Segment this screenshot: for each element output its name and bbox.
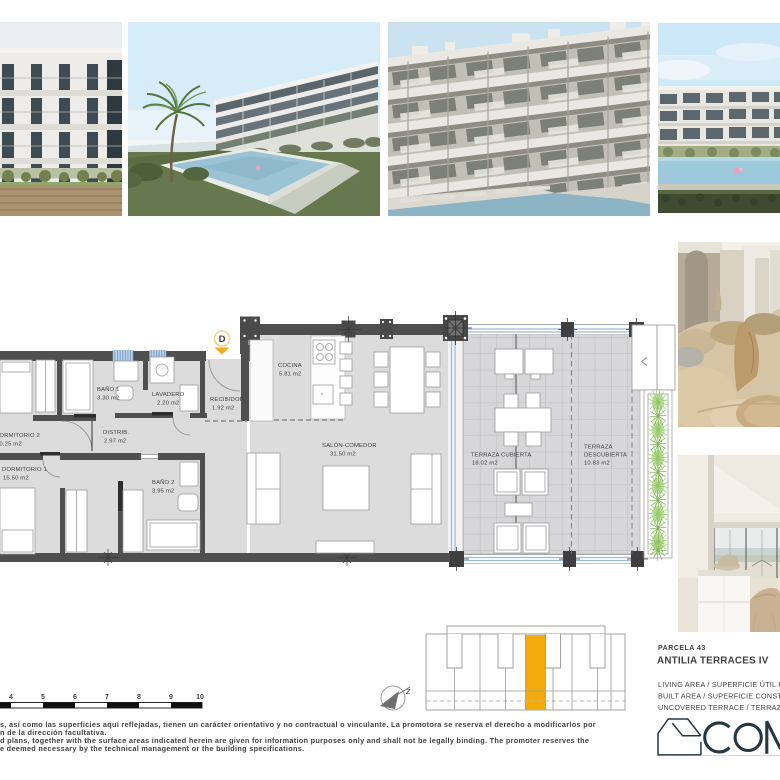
svg-text:15.50 m2: 15.50 m2 [3, 476, 29, 482]
svg-text:RECIBIDOR: RECIBIDOR [210, 397, 244, 403]
svg-text:10.25 m2: 10.25 m2 [0, 442, 22, 448]
svg-text:5.81 m2: 5.81 m2 [279, 372, 301, 378]
svg-text:10: 10 [196, 694, 204, 701]
svg-text:PARCELA 43: PARCELA 43 [658, 645, 706, 652]
svg-text:10.83 m2: 10.83 m2 [584, 461, 610, 467]
svg-text:3.30 m2: 3.30 m2 [97, 396, 119, 402]
svg-text:ANTILIA TERRACES IV: ANTILIA TERRACES IV [657, 656, 769, 667]
svg-text:DORMITORIO 1: DORMITORIO 1 [2, 467, 47, 473]
svg-text:9: 9 [169, 694, 173, 701]
svg-text:3.95 m2: 3.95 m2 [152, 489, 174, 495]
svg-text:31.50 m2: 31.50 m2 [330, 452, 356, 458]
svg-text:LIVING AREA / SUPERFICIE ÚTIL: LIVING AREA / SUPERFICIE ÚTIL RESIDENCIA… [658, 680, 780, 689]
svg-text:DISTRIB.: DISTRIB. [103, 430, 129, 436]
svg-text:LAVADERO: LAVADERO [152, 392, 185, 398]
svg-text:18.02 m2: 18.02 m2 [472, 461, 498, 467]
svg-text:z: z [405, 686, 411, 696]
svg-text:e deemed necessary by the tech: e deemed necessary by the technical mana… [0, 744, 304, 753]
svg-text:7: 7 [105, 694, 109, 701]
svg-text:UNCOVERED TERRACE / TERRAZA DE: UNCOVERED TERRACE / TERRAZA DESCUBIERTA [658, 703, 780, 712]
svg-text:8: 8 [137, 694, 141, 701]
svg-text:2.20 m2: 2.20 m2 [157, 401, 179, 407]
svg-text:2.97 m2: 2.97 m2 [104, 439, 126, 445]
svg-text:BAÑO 1: BAÑO 1 [97, 386, 120, 393]
svg-text:DESCUBIERTA: DESCUBIERTA [584, 453, 627, 459]
svg-text:DORMITORIO 2: DORMITORIO 2 [0, 433, 40, 439]
svg-text:4: 4 [9, 694, 13, 701]
svg-text:BUILT AREA / SUPERFICIE CONSTR: BUILT AREA / SUPERFICIE CONSTRUIDA TOTAL [658, 692, 780, 701]
svg-text:SALÓN-COMEDOR: SALÓN-COMEDOR [322, 442, 377, 449]
svg-text:5: 5 [41, 694, 45, 701]
svg-text:1.92 m2: 1.92 m2 [212, 406, 234, 412]
svg-text:TERRAZA CUBIERTA: TERRAZA CUBIERTA [471, 453, 531, 459]
svg-text:6: 6 [73, 694, 77, 701]
svg-text:BAÑO 2: BAÑO 2 [152, 479, 175, 486]
svg-text:TERRAZA: TERRAZA [584, 445, 613, 451]
svg-text:D: D [219, 334, 226, 345]
svg-text:COCINA: COCINA [278, 363, 302, 369]
